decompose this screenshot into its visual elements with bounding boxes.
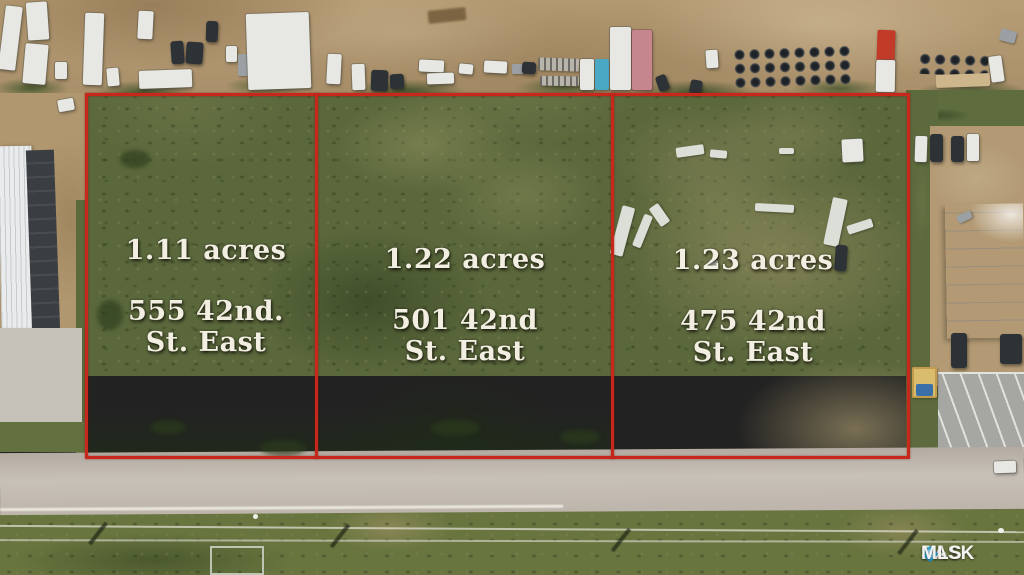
dock-truck [1000, 334, 1022, 364]
warehouse-white [610, 27, 631, 90]
truck [326, 54, 342, 85]
dirt-mound [427, 7, 466, 24]
building-pink [632, 30, 652, 90]
equipment-trailer [419, 59, 445, 72]
trailer [26, 1, 50, 40]
saskmls-watermark: SASK MLS ® [921, 548, 947, 560]
van [55, 62, 67, 79]
pallet-stack [371, 70, 389, 92]
car [185, 41, 203, 64]
shed [459, 63, 474, 74]
watermark-suffix: MLS [921, 543, 962, 565]
car-on-road [994, 461, 1016, 474]
parcel-1-label: 1.11 acres 555 42nd. St. East [95, 236, 317, 358]
equipment [999, 28, 1018, 44]
parcel-3-label: 1.23 acres 475 42nd St. East [642, 246, 864, 368]
pole-shadow [88, 522, 108, 546]
parcel-3-acreage: 1.23 acres [642, 246, 864, 276]
car [106, 68, 120, 87]
dock-truck [951, 333, 967, 368]
car [206, 21, 219, 42]
car [930, 134, 943, 162]
car [655, 74, 671, 93]
pole-top [998, 528, 1004, 533]
parcel-3-address: 475 42nd St. East [642, 306, 864, 368]
van [226, 46, 237, 62]
parcel-1-address: 555 42nd. St. East [95, 296, 317, 358]
parcel-1-acreage: 1.11 acres [95, 236, 317, 266]
car [170, 41, 185, 65]
truck [705, 50, 718, 69]
pallet-rack [538, 57, 579, 71]
car [956, 210, 973, 224]
parcel-divider-line-2 [611, 93, 614, 459]
equipment-trailer [427, 73, 454, 85]
pallet-stack [390, 74, 405, 90]
trailer [876, 60, 896, 92]
crate [522, 62, 537, 75]
trailer [580, 59, 594, 90]
parcel-2-address: 501 42nd St. East [354, 305, 576, 367]
van [57, 98, 75, 113]
shipping-container-blue [595, 59, 609, 90]
dumpster-blue [916, 384, 933, 396]
pickup-truck [967, 134, 979, 161]
lumber-pile [936, 73, 990, 88]
aerial-listing-photo: 1.11 acres 555 42nd. St. East 1.22 acres… [0, 0, 1024, 575]
car [951, 136, 964, 162]
truck [352, 64, 366, 90]
pole-shadow [897, 529, 919, 555]
shed [484, 60, 508, 73]
parcel-2-label: 1.22 acres 501 42nd St. East [354, 245, 576, 367]
crane-truck-red [876, 30, 895, 63]
pallet-rack [540, 76, 579, 87]
warehouse-roof [246, 12, 312, 90]
box-truck [22, 43, 48, 85]
tire-stacks [732, 44, 851, 92]
flatbed-trailer [139, 69, 193, 89]
car [915, 136, 928, 162]
pole-shadow [611, 528, 631, 553]
semi-trailer [0, 5, 23, 71]
rv [137, 11, 153, 40]
pole-top [253, 514, 258, 519]
rv [83, 13, 105, 86]
truck [988, 55, 1004, 83]
pole-shadow [330, 524, 350, 549]
parcel-2-acreage: 1.22 acres [354, 245, 576, 275]
